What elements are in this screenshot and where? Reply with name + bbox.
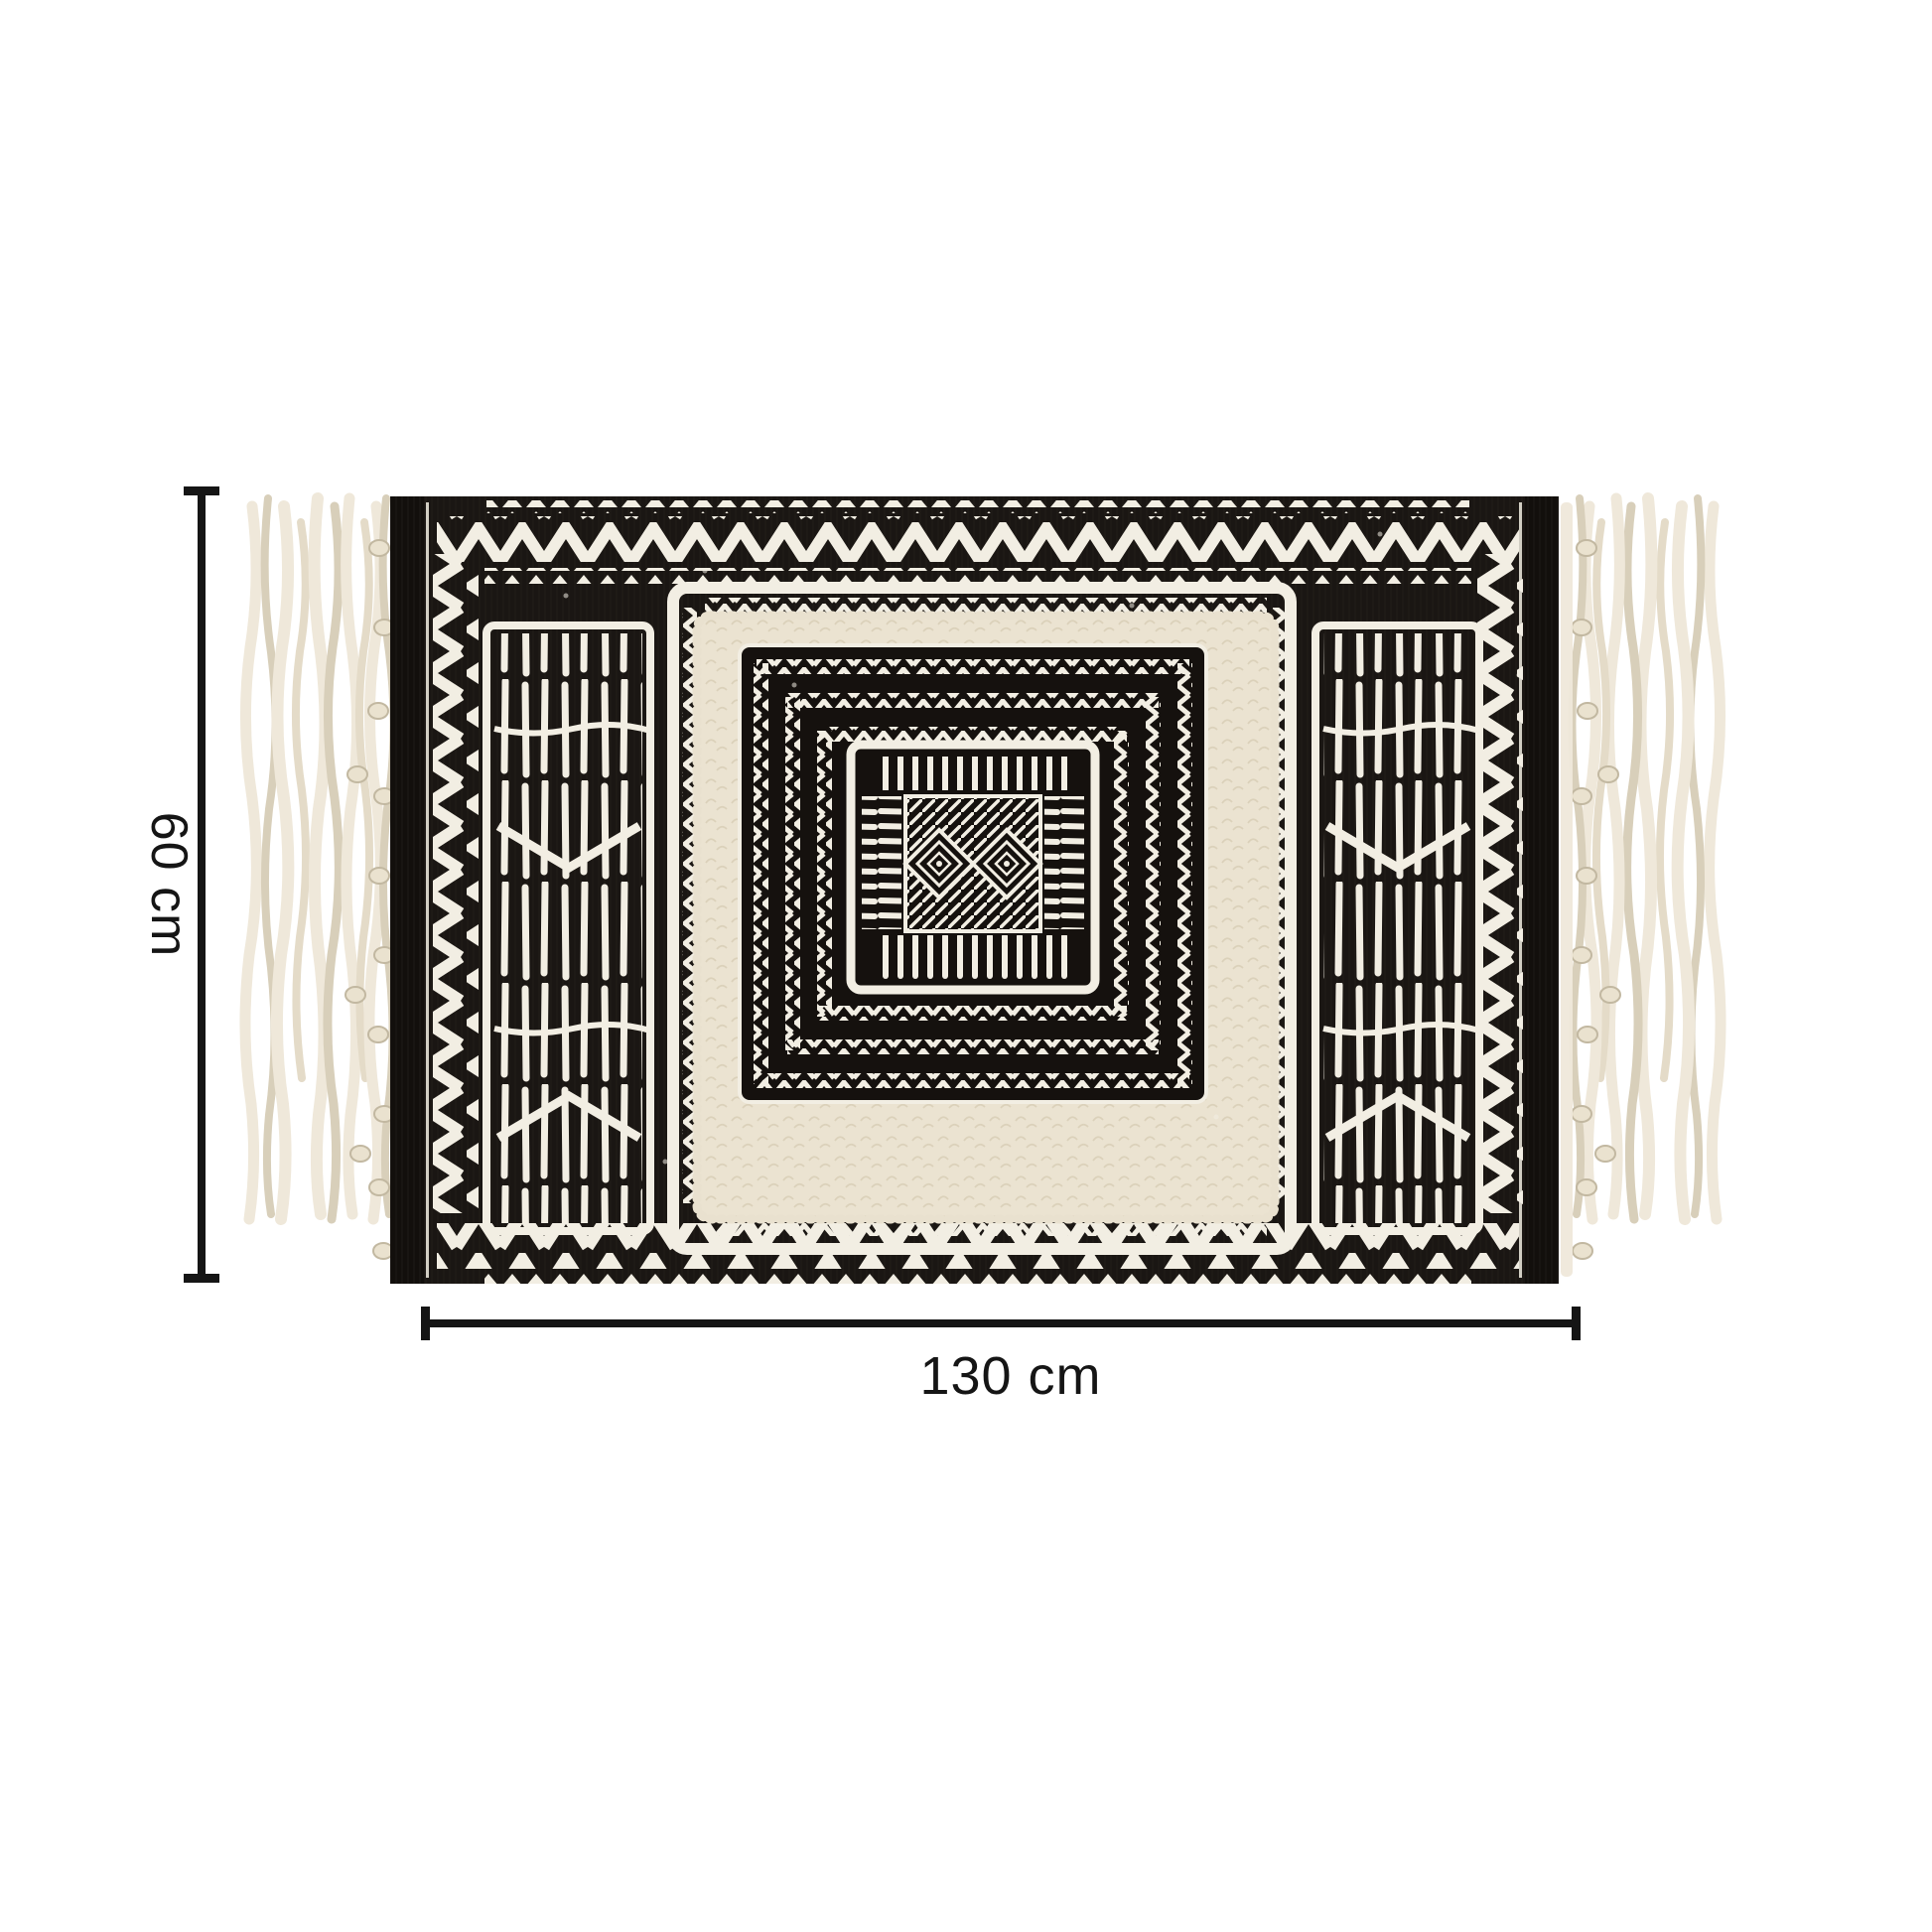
center-medallion xyxy=(740,645,1206,1102)
width-dimension-label: 130 cm xyxy=(862,1348,1160,1404)
height-dimension-label: 60 cm xyxy=(139,805,199,964)
width-dimension-line xyxy=(425,1319,1577,1327)
hatch-panel-right xyxy=(1315,625,1479,1231)
product-dimension-diagram: 60 cm 130 cm xyxy=(0,0,1932,1932)
fringe-left xyxy=(245,498,394,1259)
fringe-right xyxy=(1572,498,1721,1259)
height-dimension-line xyxy=(198,490,206,1279)
hatch-panel-left xyxy=(486,625,650,1231)
rug-body xyxy=(390,496,1559,1284)
rug-product-image xyxy=(238,477,1757,1301)
